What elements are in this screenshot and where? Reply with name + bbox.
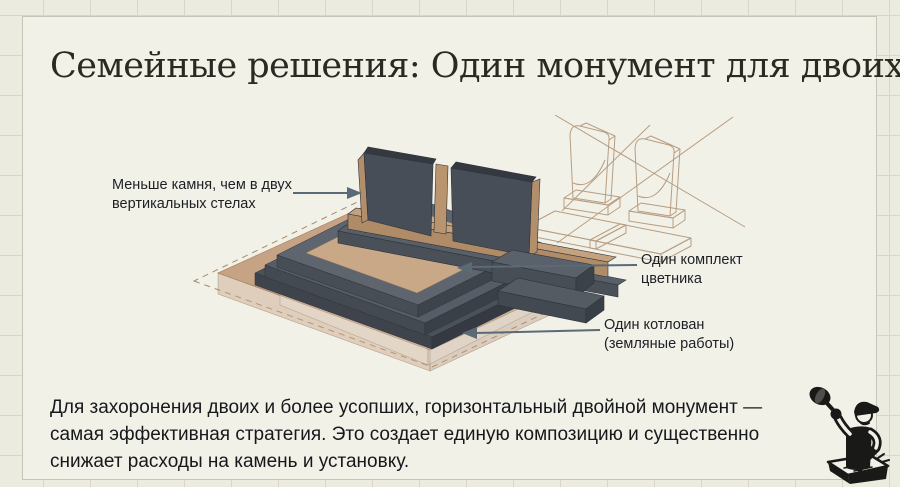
slide: { "slide": { "title": "Семейные решения:… [0,0,900,487]
callout-flowerbed-line2: цветника [641,270,743,289]
callout-flowerbed-line1: Один комплект [641,251,743,270]
callout-flowerbed: Один комплект цветника [641,251,743,289]
paragraph-line-1: Для захоронения двоих и более усопших, г… [50,394,810,421]
slide-paragraph: Для захоронения двоих и более усопших, г… [50,394,810,475]
stonemason-logo-icon [798,380,898,484]
paragraph-line-2: самая эффективная стратегия. Это создает… [50,421,810,448]
paragraph-line-3: снижает расходы на камень и установку. [50,448,810,475]
callout-pit: Один котлован (земляные работы) [604,316,734,354]
callout-less-stone-line2: вертикальных стелах [112,195,292,214]
two-vertical-steles-crossed-out-icon [525,115,745,262]
callout-less-stone: Меньше камня, чем в двух вертикальных ст… [112,176,292,214]
callout-pit-line1: Один котлован [604,316,734,335]
callout-pit-line2: (земляные работы) [604,335,734,354]
slide-title: Семейные решения: Один монумент для двои… [50,46,850,86]
callout-less-stone-line1: Меньше камня, чем в двух [112,176,292,195]
